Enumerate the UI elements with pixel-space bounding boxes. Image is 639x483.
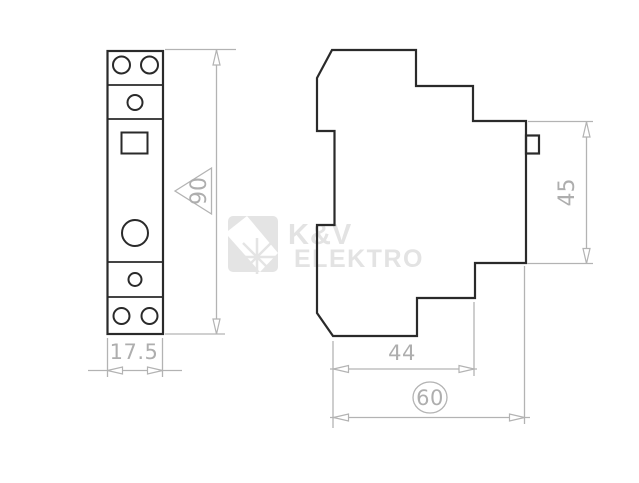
arrow-up-icon (583, 122, 590, 137)
front-body-outline (108, 51, 164, 334)
watermark-brand-line2: ELEKTRO (294, 245, 424, 273)
side-profile-outline (317, 50, 526, 336)
side-total-depth-value: 60 (416, 386, 444, 410)
side-clip-tab (526, 136, 539, 154)
front-width-value: 17.5 (110, 340, 159, 364)
dimension-front-height: 90 (165, 50, 236, 335)
technical-drawing-canvas: K&V ELEKTRO 90 (0, 0, 639, 483)
center-button-circle (122, 220, 148, 246)
arrow-right-icon (459, 366, 474, 373)
arrow-down-icon (583, 249, 590, 264)
arrow-left-icon (334, 414, 349, 421)
upper-single-circle (128, 95, 143, 110)
dimension-side-depth: 44 (330, 302, 477, 428)
arrow-right-icon (510, 414, 525, 421)
dimension-side-height: 45 (527, 122, 593, 264)
logo-starburst-icon (238, 238, 276, 274)
arrow-left-icon (108, 367, 123, 374)
top-terminal-left-circle (113, 57, 130, 74)
side-view (317, 50, 539, 336)
drawing-svg: K&V ELEKTRO 90 (0, 0, 639, 483)
arrow-down-icon (213, 319, 220, 334)
side-depth-value: 44 (388, 341, 416, 365)
kv-elektro-logo-icon (228, 216, 278, 274)
dimension-front-width: 17.5 (88, 338, 182, 377)
bottom-terminal-left-circle (114, 308, 130, 324)
dimension-side-total-depth: 60 (330, 266, 530, 424)
front-height-value: 90 (187, 177, 212, 205)
arrow-up-icon (213, 50, 220, 65)
indicator-window-square (122, 133, 148, 154)
top-terminal-right-circle (141, 57, 158, 74)
bottom-terminal-right-circle (142, 308, 158, 324)
side-height-value: 45 (555, 179, 580, 207)
arrow-right-icon (148, 367, 163, 374)
front-view (108, 51, 164, 334)
arrow-left-icon (334, 366, 349, 373)
lower-single-circle (129, 273, 142, 286)
